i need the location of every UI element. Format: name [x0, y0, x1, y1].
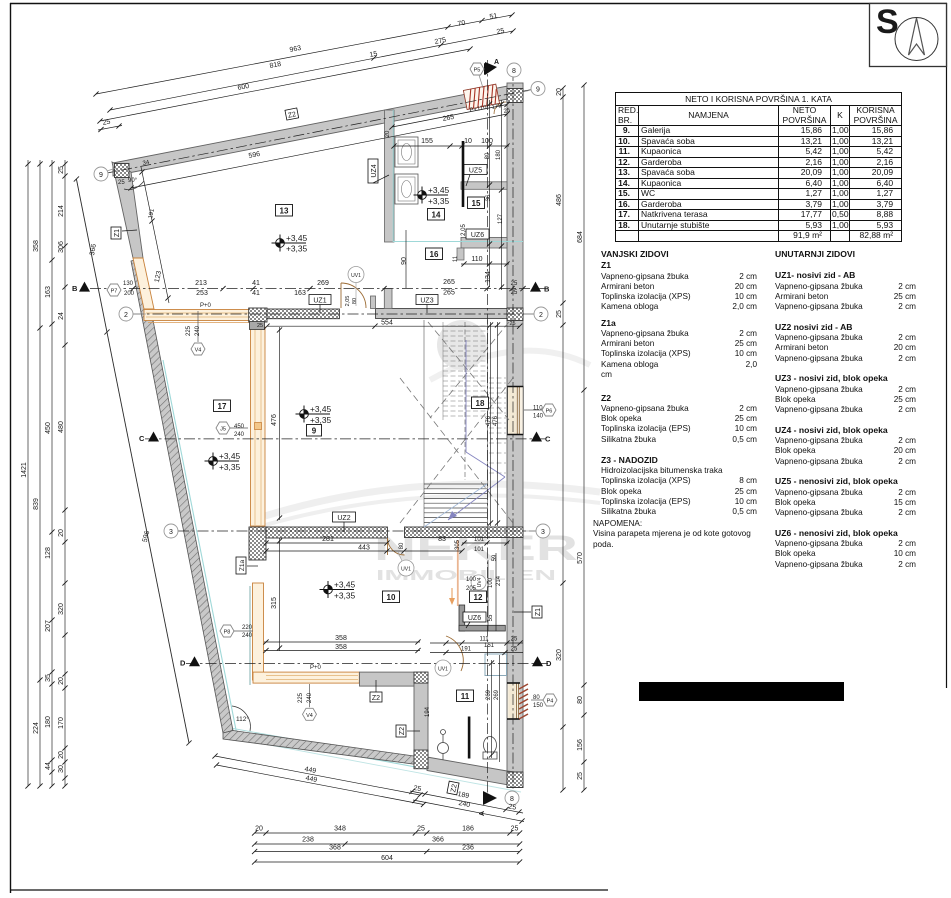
svg-text:36: 36	[486, 194, 492, 201]
svg-text:127: 127	[498, 213, 504, 224]
svg-text:C: C	[545, 435, 551, 444]
svg-text:25: 25	[257, 323, 263, 329]
svg-text:70: 70	[457, 20, 466, 28]
svg-text:240: 240	[458, 800, 471, 809]
svg-text:25: 25	[413, 785, 422, 793]
svg-text:41: 41	[252, 290, 260, 297]
svg-text:25: 25	[511, 647, 518, 653]
svg-text:A: A	[494, 59, 499, 66]
svg-text:25: 25	[511, 637, 518, 643]
svg-text:224: 224	[33, 722, 40, 734]
svg-text:213: 213	[195, 280, 207, 287]
svg-text:55: 55	[488, 614, 494, 621]
svg-text:24: 24	[58, 312, 65, 320]
svg-text:+3,45: +3,45	[286, 233, 308, 243]
svg-text:UZ4: UZ4	[371, 164, 378, 177]
svg-text:V4: V4	[306, 713, 313, 719]
svg-text:25: 25	[577, 772, 584, 780]
svg-text:150: 150	[533, 703, 544, 709]
svg-text:240: 240	[234, 432, 245, 438]
svg-text:191: 191	[148, 208, 156, 220]
svg-text:17: 17	[218, 402, 227, 411]
svg-text:UZ3: UZ3	[420, 298, 433, 305]
svg-text:UZ5: UZ5	[469, 168, 482, 175]
svg-text:+3,35: +3,35	[428, 196, 450, 206]
svg-text:+3,35: +3,35	[334, 591, 356, 601]
svg-text:240: 240	[242, 633, 253, 639]
svg-text:596: 596	[248, 151, 261, 160]
svg-text:2,05: 2,05	[345, 296, 351, 307]
svg-text:100: 100	[466, 577, 477, 583]
svg-text:25: 25	[511, 290, 518, 296]
svg-text:J5: J5	[220, 427, 226, 433]
svg-text:476: 476	[486, 415, 492, 426]
svg-text:368: 368	[329, 845, 341, 852]
svg-text:684: 684	[577, 231, 584, 243]
svg-text:UV1: UV1	[401, 567, 411, 573]
svg-text:V4: V4	[195, 348, 202, 354]
svg-text:101: 101	[474, 547, 485, 553]
svg-text:35: 35	[45, 674, 52, 682]
svg-text:2: 2	[539, 312, 543, 319]
svg-text:281: 281	[322, 536, 334, 543]
svg-text:UZ1: UZ1	[313, 298, 326, 305]
svg-text:20: 20	[556, 88, 563, 96]
svg-text:18: 18	[476, 399, 485, 408]
svg-text:+3,45: +3,45	[310, 404, 332, 414]
svg-text:315: 315	[271, 597, 278, 609]
svg-text:818: 818	[269, 61, 282, 70]
svg-text:265: 265	[443, 279, 455, 286]
svg-text:59: 59	[492, 554, 498, 561]
svg-text:Z2: Z2	[372, 695, 380, 702]
svg-text:10: 10	[464, 138, 472, 145]
svg-text:151: 151	[484, 643, 495, 649]
svg-text:163: 163	[45, 286, 52, 298]
svg-text:358: 358	[335, 644, 347, 651]
svg-text:449: 449	[304, 766, 317, 775]
svg-text:80: 80	[485, 152, 491, 159]
svg-text:D: D	[180, 659, 186, 668]
svg-text:123: 123	[154, 270, 163, 283]
svg-text:13: 13	[280, 207, 289, 216]
svg-text:101: 101	[474, 537, 485, 543]
svg-text:11: 11	[453, 255, 459, 262]
svg-text:UV1: UV1	[351, 273, 361, 279]
svg-text:14: 14	[432, 211, 441, 220]
svg-text:Z2: Z2	[399, 727, 406, 735]
svg-text:269: 269	[317, 280, 329, 287]
svg-text:80: 80	[352, 298, 358, 304]
svg-text:450: 450	[45, 422, 52, 434]
svg-text:20: 20	[385, 130, 391, 137]
svg-text:366: 366	[432, 837, 444, 844]
svg-text:P+0: P+0	[310, 665, 322, 671]
svg-text:+3,45: +3,45	[428, 185, 450, 195]
svg-text:253: 253	[196, 290, 208, 297]
svg-text:110: 110	[471, 256, 482, 263]
svg-text:+3,35: +3,35	[219, 462, 241, 472]
svg-text:D: D	[546, 659, 552, 668]
svg-text:83: 83	[438, 536, 446, 543]
svg-text:269: 269	[486, 689, 492, 700]
svg-text:128: 128	[45, 547, 52, 559]
svg-text:163: 163	[294, 290, 306, 297]
svg-text:100: 100	[488, 577, 494, 588]
svg-text:225: 225	[298, 692, 304, 703]
svg-text:189: 189	[457, 791, 470, 800]
svg-text:214: 214	[58, 205, 65, 217]
svg-text:16: 16	[430, 250, 439, 259]
svg-text:UZ6: UZ6	[471, 232, 484, 239]
svg-text:110: 110	[533, 406, 543, 412]
svg-text:UZ2: UZ2	[337, 515, 350, 522]
svg-text:12: 12	[474, 593, 483, 602]
svg-text:25: 25	[496, 28, 505, 36]
svg-text:15: 15	[472, 199, 481, 208]
svg-text:25: 25	[417, 826, 425, 833]
svg-text:596: 596	[142, 530, 152, 543]
svg-text:+3,35: +3,35	[310, 415, 332, 425]
svg-text:8: 8	[510, 796, 514, 803]
svg-text:839: 839	[33, 498, 40, 510]
svg-text:15: 15	[369, 51, 378, 59]
svg-text:240: 240	[307, 692, 313, 703]
svg-text:1421: 1421	[21, 462, 28, 478]
svg-text:320: 320	[58, 603, 65, 615]
svg-text:3: 3	[169, 529, 173, 536]
svg-text:P6: P6	[546, 409, 553, 415]
svg-text:170: 170	[58, 717, 65, 729]
svg-text:269: 269	[494, 689, 500, 700]
svg-text:25: 25	[511, 826, 519, 833]
svg-text:320: 320	[556, 649, 563, 661]
svg-text:25: 25	[118, 180, 125, 186]
svg-text:B: B	[72, 284, 78, 293]
svg-text:25: 25	[508, 803, 517, 811]
svg-text:20: 20	[58, 677, 65, 685]
svg-text:25: 25	[102, 119, 111, 127]
svg-text:90°: 90°	[128, 178, 138, 184]
svg-text:450: 450	[234, 424, 245, 430]
svg-text:476: 476	[271, 414, 278, 426]
svg-text:155: 155	[421, 138, 433, 145]
svg-text:214: 214	[496, 575, 502, 586]
svg-text:111: 111	[479, 637, 489, 643]
svg-text:443: 443	[358, 545, 370, 552]
svg-text:41: 41	[252, 280, 260, 287]
svg-text:604: 604	[381, 855, 393, 862]
svg-text:9: 9	[312, 427, 317, 436]
svg-text:11: 11	[461, 692, 470, 701]
svg-text:225: 225	[186, 325, 192, 336]
svg-text:UV1: UV1	[438, 667, 448, 673]
svg-text:238: 238	[302, 837, 314, 844]
svg-text:Z1a: Z1a	[239, 560, 246, 572]
svg-text:2,05: 2,05	[461, 224, 467, 236]
svg-text:UZ6: UZ6	[468, 615, 481, 622]
svg-text:130: 130	[123, 281, 134, 287]
svg-text:9: 9	[536, 86, 540, 93]
svg-text:20: 20	[58, 529, 65, 537]
svg-text:2: 2	[124, 312, 128, 319]
svg-text:140: 140	[533, 414, 544, 420]
svg-text:80: 80	[533, 695, 540, 701]
svg-text:570: 570	[577, 552, 584, 564]
svg-text:20: 20	[255, 826, 263, 833]
svg-text:P4: P4	[547, 699, 554, 705]
svg-text:C: C	[139, 434, 145, 443]
svg-text:P+0: P+0	[200, 303, 212, 309]
svg-text:25: 25	[58, 166, 65, 174]
svg-text:+3,45: +3,45	[334, 580, 356, 590]
svg-text:600: 600	[237, 83, 250, 92]
svg-text:Z1: Z1	[535, 608, 542, 616]
svg-text:P7: P7	[111, 289, 118, 295]
svg-text:134: 134	[485, 271, 492, 283]
svg-text:240: 240	[195, 325, 201, 336]
svg-text:358: 358	[335, 635, 347, 642]
svg-text:194: 194	[425, 706, 431, 717]
svg-text:8: 8	[512, 68, 516, 75]
svg-text:44: 44	[45, 762, 52, 770]
svg-text:80: 80	[399, 542, 405, 549]
svg-text:3: 3	[541, 529, 545, 536]
svg-text:200: 200	[124, 291, 135, 297]
svg-text:9: 9	[99, 172, 103, 179]
svg-text:80: 80	[577, 696, 584, 704]
svg-text:358: 358	[33, 240, 40, 252]
svg-text:191: 191	[461, 647, 472, 653]
svg-text:366: 366	[89, 243, 98, 256]
svg-text:90: 90	[401, 257, 408, 265]
svg-text:UV4: UV4	[477, 577, 483, 587]
svg-text:205: 205	[466, 586, 477, 592]
svg-text:+3,45: +3,45	[219, 451, 241, 461]
svg-text:30: 30	[58, 765, 65, 773]
svg-text:236: 236	[462, 845, 474, 852]
svg-text:554: 554	[381, 320, 393, 327]
svg-text:Z1: Z1	[114, 229, 121, 237]
svg-text:51: 51	[489, 13, 498, 21]
svg-text:P5: P5	[474, 68, 481, 74]
svg-text:207: 207	[45, 620, 52, 632]
svg-text:179: 179	[491, 103, 503, 111]
svg-text:480: 480	[58, 421, 65, 433]
svg-text:10: 10	[387, 593, 396, 602]
svg-text:306: 306	[58, 241, 65, 253]
svg-text:486: 486	[556, 194, 563, 206]
svg-text:186: 186	[462, 826, 474, 833]
svg-text:449: 449	[305, 775, 318, 784]
svg-text:180: 180	[45, 716, 52, 728]
svg-text:476: 476	[493, 415, 499, 426]
svg-text:P8: P8	[224, 630, 231, 636]
svg-text:220: 220	[242, 625, 253, 631]
svg-text:+3,35: +3,35	[286, 244, 308, 254]
svg-text:B: B	[544, 285, 550, 294]
svg-text:180: 180	[496, 149, 502, 160]
svg-text:265: 265	[443, 290, 455, 297]
svg-text:25: 25	[556, 310, 563, 318]
svg-text:348: 348	[334, 826, 346, 833]
svg-text:305: 305	[455, 539, 461, 550]
svg-text:20: 20	[58, 751, 65, 759]
svg-text:156: 156	[577, 739, 584, 751]
svg-text:963: 963	[289, 45, 302, 54]
